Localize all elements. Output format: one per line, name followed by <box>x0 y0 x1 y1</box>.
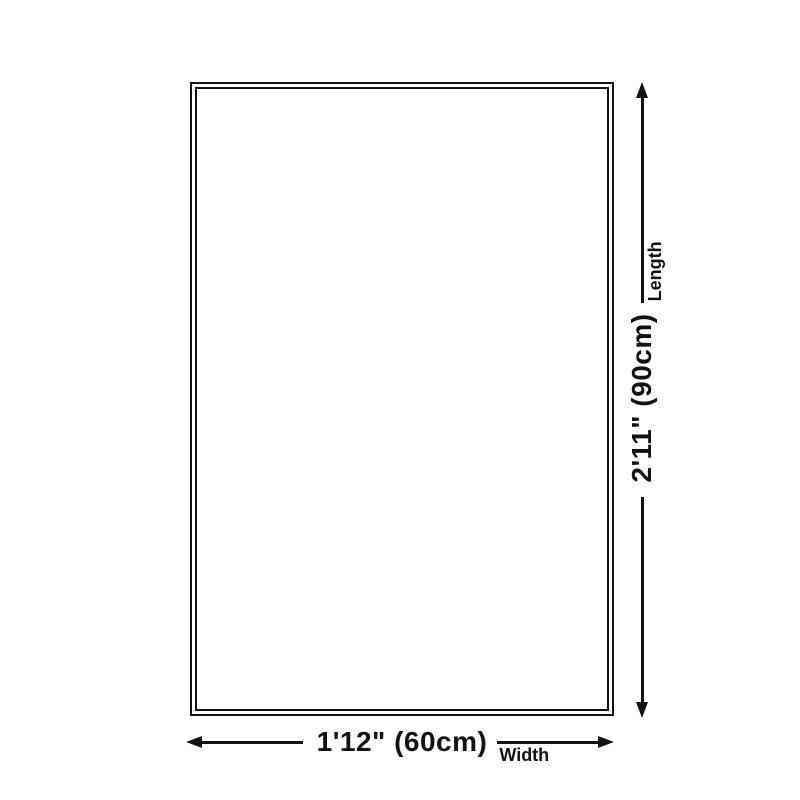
length-dimension-value: 2'11" (90cm) <box>628 303 656 496</box>
arrow-left-icon <box>186 736 202 748</box>
rug-outline-inner <box>195 87 609 711</box>
length-arrow-shaft <box>641 497 644 702</box>
width-dimension-label: Width <box>499 746 549 764</box>
width-arrow-left-segment <box>186 720 303 764</box>
arrow-up-icon <box>636 82 648 98</box>
arrow-right-icon <box>598 736 614 748</box>
width-arrow-shaft <box>497 741 598 744</box>
width-dimension-arrow: 1'12" (60cm) Width <box>186 720 614 764</box>
width-arrow-right-segment: Width <box>497 720 614 764</box>
width-dimension-value: 1'12" (60cm) <box>303 728 498 756</box>
length-arrow-bottom-segment <box>620 497 664 718</box>
length-dimension-arrow: 2'11" (90cm) Length <box>620 82 664 718</box>
length-arrow-top-segment: Length <box>620 82 664 303</box>
dimension-diagram: 2'11" (90cm) Length 1'12" (60cm) Width <box>0 0 800 800</box>
length-dimension-label: Length <box>646 241 664 301</box>
width-arrow-shaft <box>202 741 303 744</box>
rug-outline <box>190 82 614 716</box>
arrow-down-icon <box>636 702 648 718</box>
length-arrow-shaft <box>641 98 644 303</box>
